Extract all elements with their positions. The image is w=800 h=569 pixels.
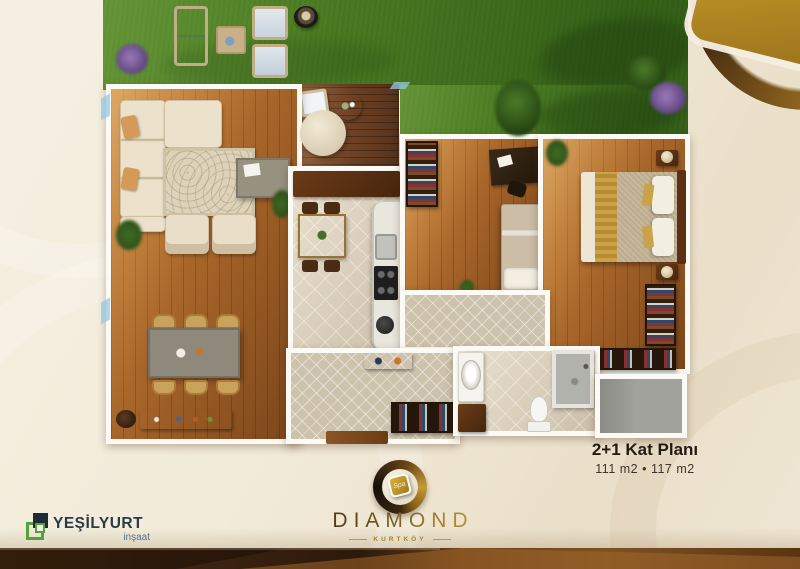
diamond-location: KURTKÖY [330, 536, 470, 543]
bush-purple-left [116, 44, 148, 74]
bathroom-shower [552, 350, 594, 408]
master-wardrobe-side [645, 284, 676, 346]
bottom-band [0, 548, 800, 569]
developer-field: inşaat [53, 532, 150, 543]
master-bed-runner [595, 172, 617, 262]
kitchen-chair-1 [302, 202, 318, 214]
master-lamp-1 [661, 151, 673, 163]
living-vase [116, 410, 136, 428]
bathroom-sink [461, 360, 481, 390]
plan-areas: 111 m2 • 117 m2 [570, 462, 720, 476]
entry-door [326, 431, 388, 444]
kitchen-table [298, 214, 346, 258]
dining-chair-6 [216, 380, 240, 395]
room-hallway [400, 290, 550, 352]
dining-chair-4 [152, 380, 176, 395]
garden-firepit [294, 6, 318, 28]
entry-console [364, 353, 412, 369]
plan-title: 2+1 Kat Planı [570, 440, 720, 460]
dining-chair-3 [216, 314, 240, 329]
kitchen-chair-3 [302, 260, 318, 272]
master-pillow-2 [652, 218, 674, 256]
coffee-table-papers [243, 163, 261, 177]
bedroom2-wardrobe [406, 141, 438, 207]
entry-shoe-cabinet [391, 402, 455, 433]
diamond-wordmark: DIAMOND [300, 509, 500, 533]
diamond-location-label: KURTKÖY [373, 536, 426, 543]
developer-logo: YEŞİLYURT inşaat [26, 511, 151, 547]
developer-icon [26, 513, 48, 539]
brochure-page: Spa İstanbul 2+1 Kat Planı 111 m2 • 117 … [0, 0, 800, 569]
master-lamp-2 [661, 266, 673, 278]
diamond-location-line-right [433, 539, 451, 540]
master-plant [546, 140, 568, 166]
room-balcony [595, 374, 687, 438]
dining-chair-2 [184, 314, 208, 329]
kitchen-bin [376, 316, 394, 334]
master-pillow-1 [652, 176, 674, 214]
master-headboard [677, 170, 686, 264]
developer-icon-inner-square [35, 523, 45, 533]
bathroom-toilet-tank [527, 421, 551, 432]
floorplan [0, 0, 800, 460]
bedroom2-pillow [504, 268, 538, 289]
kitchen-stove [374, 266, 398, 300]
living-armchair-2 [212, 214, 256, 254]
living-plant-1 [116, 220, 142, 250]
kitchen-cabinet-top [293, 171, 400, 197]
diamond-location-line-left [349, 539, 367, 540]
bedroom2-desk [489, 146, 543, 186]
living-ottoman [300, 110, 346, 156]
diamond-emblem-text: Spa [393, 481, 407, 491]
dining-chair-5 [184, 380, 208, 395]
master-cushion-2 [642, 226, 654, 249]
dining-table [148, 328, 240, 378]
kitchen-sink [375, 234, 397, 260]
dining-chair-1 [152, 314, 176, 329]
living-sideboard [140, 410, 232, 429]
garden-side-table [216, 26, 246, 54]
kitchen-chair-2 [324, 202, 340, 214]
bush-purple-right [650, 82, 686, 114]
kitchen-chair-4 [324, 260, 340, 272]
living-armchair-1 [165, 214, 209, 254]
master-wardrobe-bottom [596, 348, 676, 370]
living-sofa-chaise [164, 100, 222, 148]
diamond-emblem: Spa [373, 460, 427, 514]
developer-name: YEŞİLYURT [53, 515, 143, 533]
bathroom-cabinet [458, 404, 486, 432]
garden-sofa [174, 6, 208, 66]
garden-armchair-1 [252, 6, 288, 40]
master-bed-sheet [581, 172, 595, 262]
bottom-band-highlight [0, 548, 440, 550]
garden-tree [495, 80, 541, 136]
garden-armchair-2 [252, 44, 288, 78]
bathroom-toilet-bowl [530, 396, 548, 422]
